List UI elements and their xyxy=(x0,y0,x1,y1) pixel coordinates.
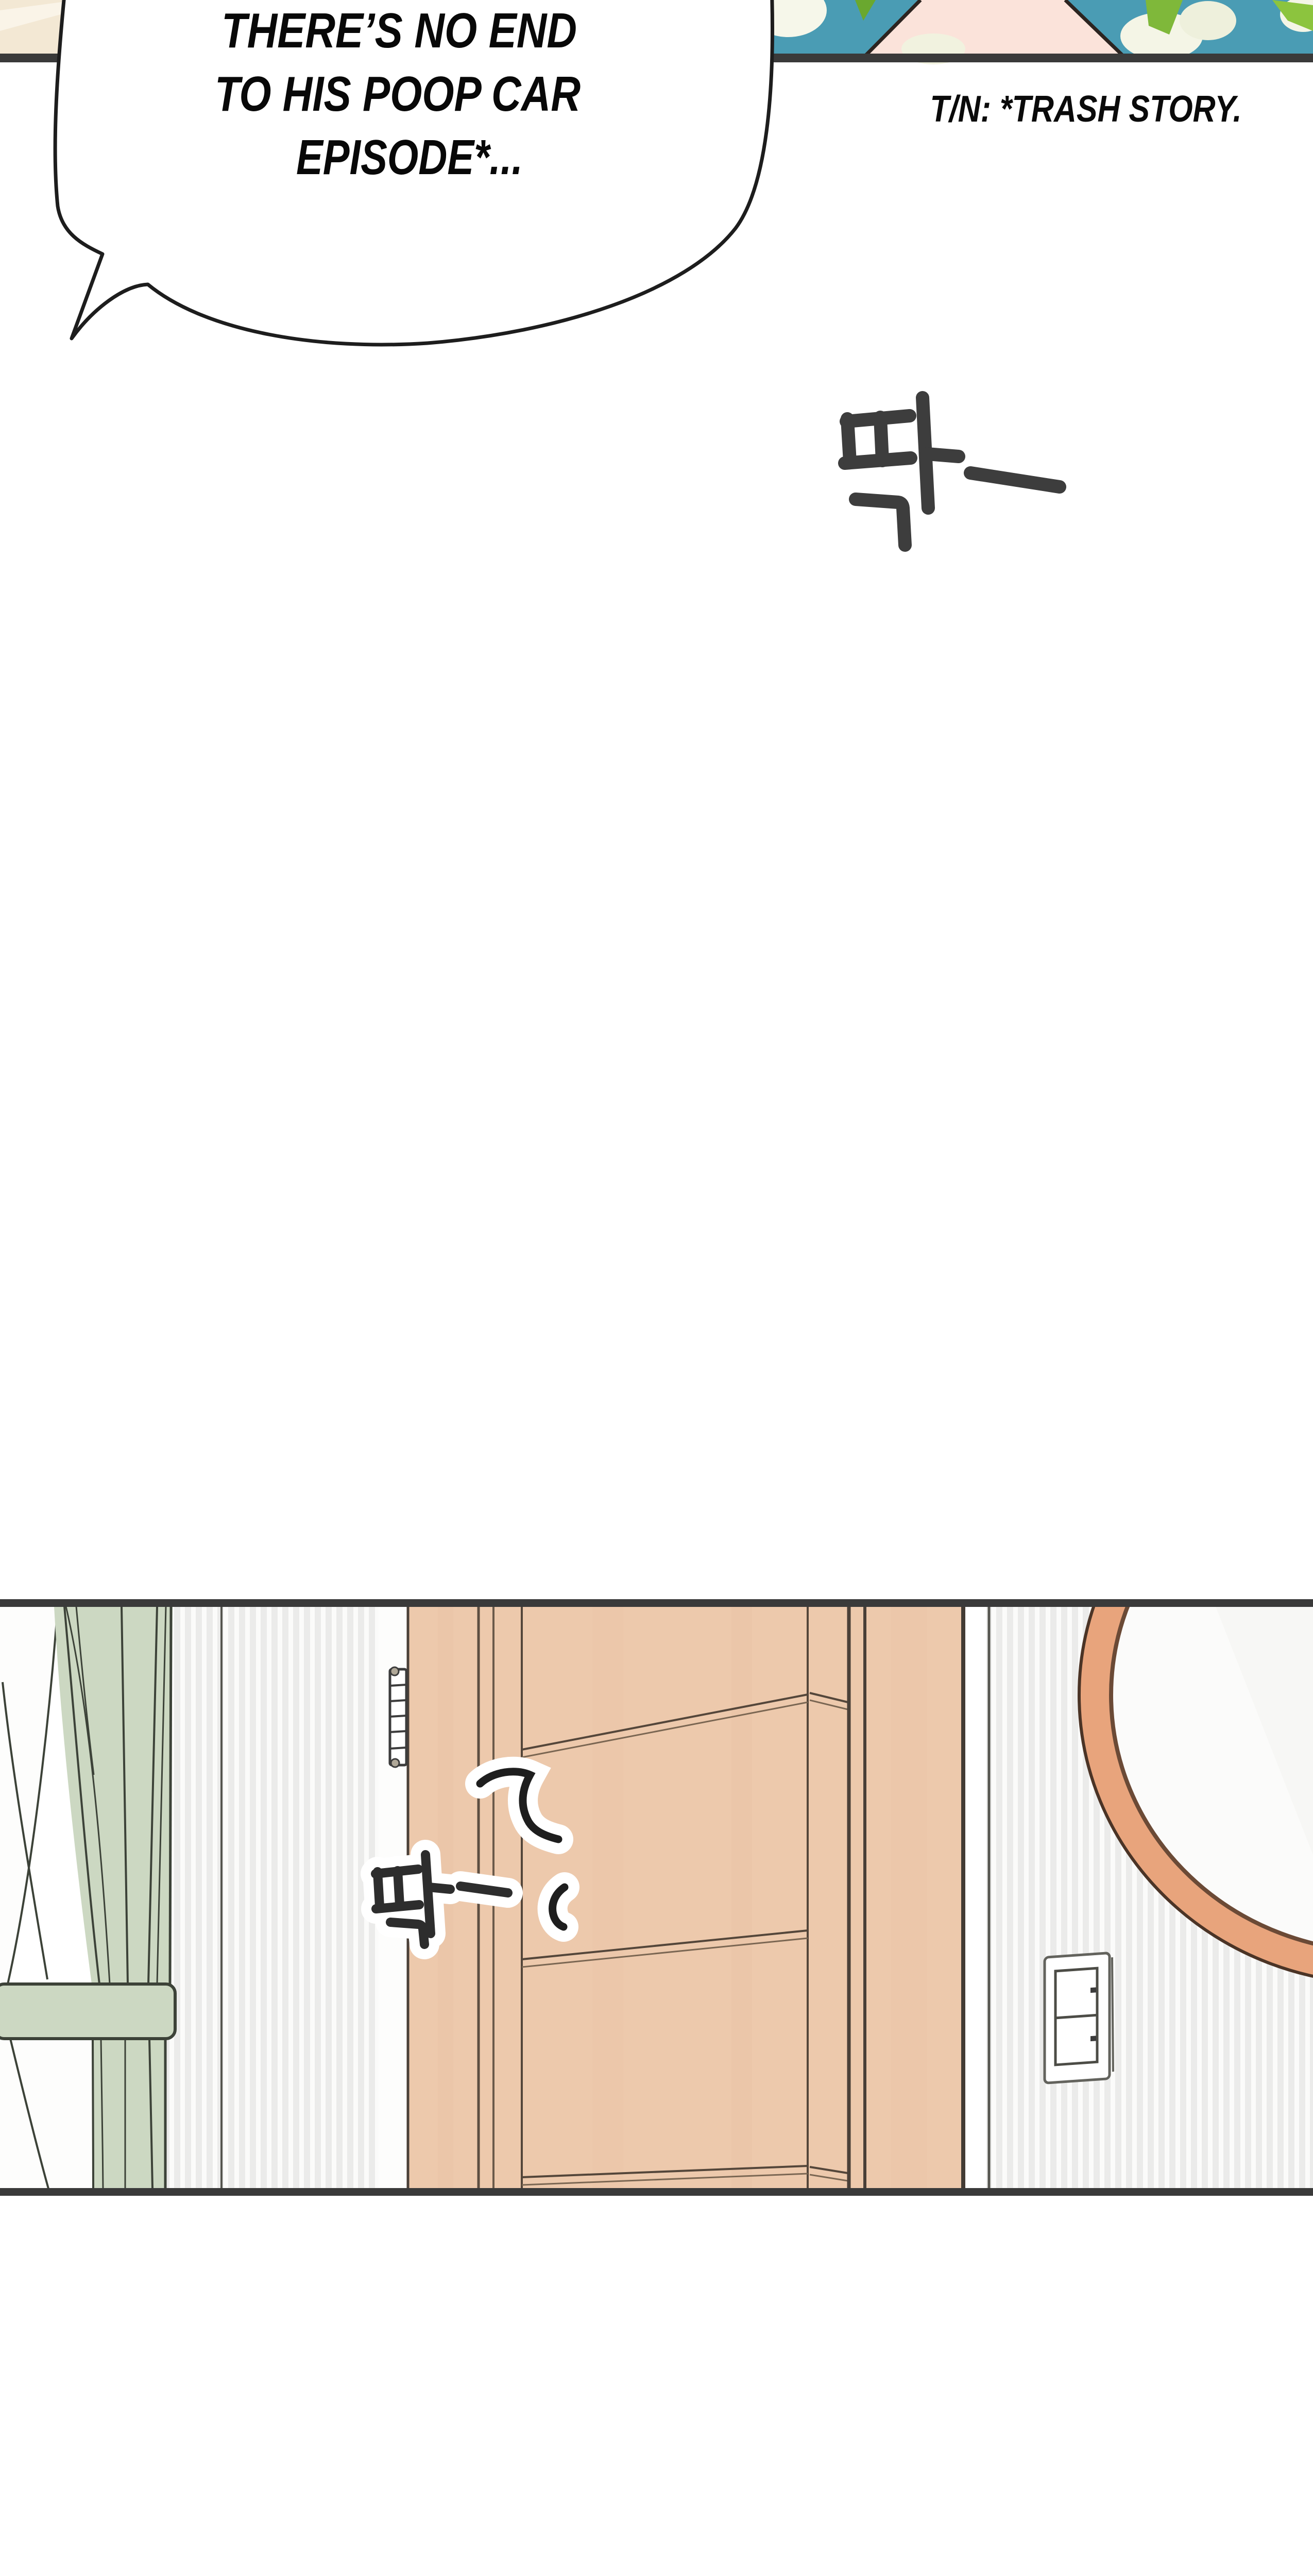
svg-text:TO HIS POOP CAR: TO HIS POOP CAR xyxy=(215,66,581,122)
svg-text:THERE’S NO END: THERE’S NO END xyxy=(221,3,577,58)
svg-text:T/N: *TRASH STORY.: T/N: *TRASH STORY. xyxy=(930,89,1242,130)
svg-text:EPISODE*...: EPISODE*... xyxy=(296,130,523,185)
